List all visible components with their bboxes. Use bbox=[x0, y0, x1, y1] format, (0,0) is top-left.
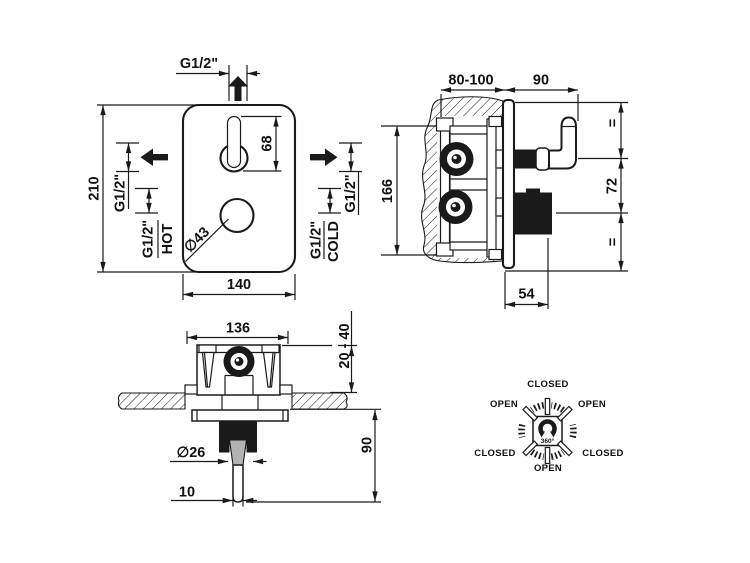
diverter-knob bbox=[221, 199, 254, 232]
cold-inlet-size-label: G1/2" bbox=[309, 221, 325, 259]
knob-projection-dim: 54 bbox=[518, 287, 534, 303]
centers-distance-dim: 72 bbox=[605, 178, 621, 194]
technical-drawing-page: 68 ∅43 210 140 G1/2" G1/2" G1/2" bbox=[0, 0, 750, 563]
collar-diameter-label: ∅26 bbox=[177, 445, 206, 461]
outlet-up-arrow-icon bbox=[228, 76, 248, 101]
lower-port bbox=[439, 190, 473, 224]
faceplate-side bbox=[503, 100, 514, 268]
dial-label-lower-left: CLOSED bbox=[474, 448, 515, 459]
side-view: 80-100 90 166 = 72 = 54 bbox=[380, 73, 628, 310]
dial-label-lower-right: CLOSED bbox=[582, 448, 623, 459]
escutcheon-flange bbox=[192, 410, 288, 421]
lever-length-dim: 68 bbox=[260, 135, 276, 151]
center-port bbox=[224, 346, 255, 377]
cold-label: COLD bbox=[326, 221, 342, 262]
outlet-left-arrow-icon bbox=[141, 149, 169, 167]
plate-width-dim: 140 bbox=[227, 277, 251, 293]
outlet-right-arrow-icon bbox=[310, 149, 338, 167]
equal-mark-top: = bbox=[606, 119, 622, 127]
left-outlet-label: G1/2" bbox=[113, 174, 129, 212]
wall-band-right bbox=[292, 393, 347, 409]
stem-projection-dim: 90 bbox=[360, 437, 376, 453]
plaster-depth-dim: 20 - 40 bbox=[337, 323, 353, 368]
dial-label-upper-right: OPEN bbox=[578, 399, 606, 410]
dial-spoke-top bbox=[545, 399, 549, 415]
rotation-degrees-label: 360° bbox=[541, 437, 555, 445]
front-view: 68 ∅43 210 140 G1/2" G1/2" G1/2" bbox=[87, 56, 363, 300]
lever-handle bbox=[228, 117, 241, 168]
right-outlet-label: G1/2" bbox=[343, 174, 359, 212]
dial-label-upper-left: OPEN bbox=[490, 399, 518, 410]
hot-label: HOT bbox=[160, 224, 176, 255]
plate-height-dim: 210 bbox=[87, 176, 103, 200]
dial-spoke-bottom bbox=[545, 448, 549, 464]
mounting-rail bbox=[441, 120, 450, 254]
body-height-dim: 166 bbox=[380, 179, 396, 203]
dial-label-top: CLOSED bbox=[527, 379, 568, 390]
dial-spoke-upper-right bbox=[558, 406, 572, 420]
dial-label-bottom: OPEN bbox=[534, 463, 562, 474]
bottom-view: 136 ∅26 bbox=[118, 311, 381, 507]
upper-port bbox=[440, 142, 474, 176]
wall-depth-dim: 80-100 bbox=[448, 73, 493, 89]
body-width-dim: 136 bbox=[226, 321, 250, 337]
knob-side bbox=[514, 193, 552, 235]
knob-collar bbox=[230, 440, 247, 465]
mixer-dimension-drawing: 68 ∅43 210 140 G1/2" G1/2" G1/2" bbox=[0, 0, 750, 563]
rotation-dial: 360° CLOSED OPEN OPEN CLOSED CLOSED OPEN bbox=[474, 379, 623, 474]
dial-spoke-lower-left bbox=[523, 441, 537, 455]
equal-mark-bottom: = bbox=[606, 238, 622, 246]
handle-stem bbox=[514, 150, 538, 169]
knob-stem bbox=[233, 465, 243, 502]
hot-inlet-size-label: G1/2" bbox=[141, 220, 157, 258]
lever-hook bbox=[549, 118, 576, 169]
top-connection-label: G1/2" bbox=[180, 56, 218, 72]
stem-width-dim: 10 bbox=[179, 485, 195, 501]
handle-projection-dim: 90 bbox=[533, 73, 549, 89]
wall-band-left bbox=[118, 393, 185, 409]
